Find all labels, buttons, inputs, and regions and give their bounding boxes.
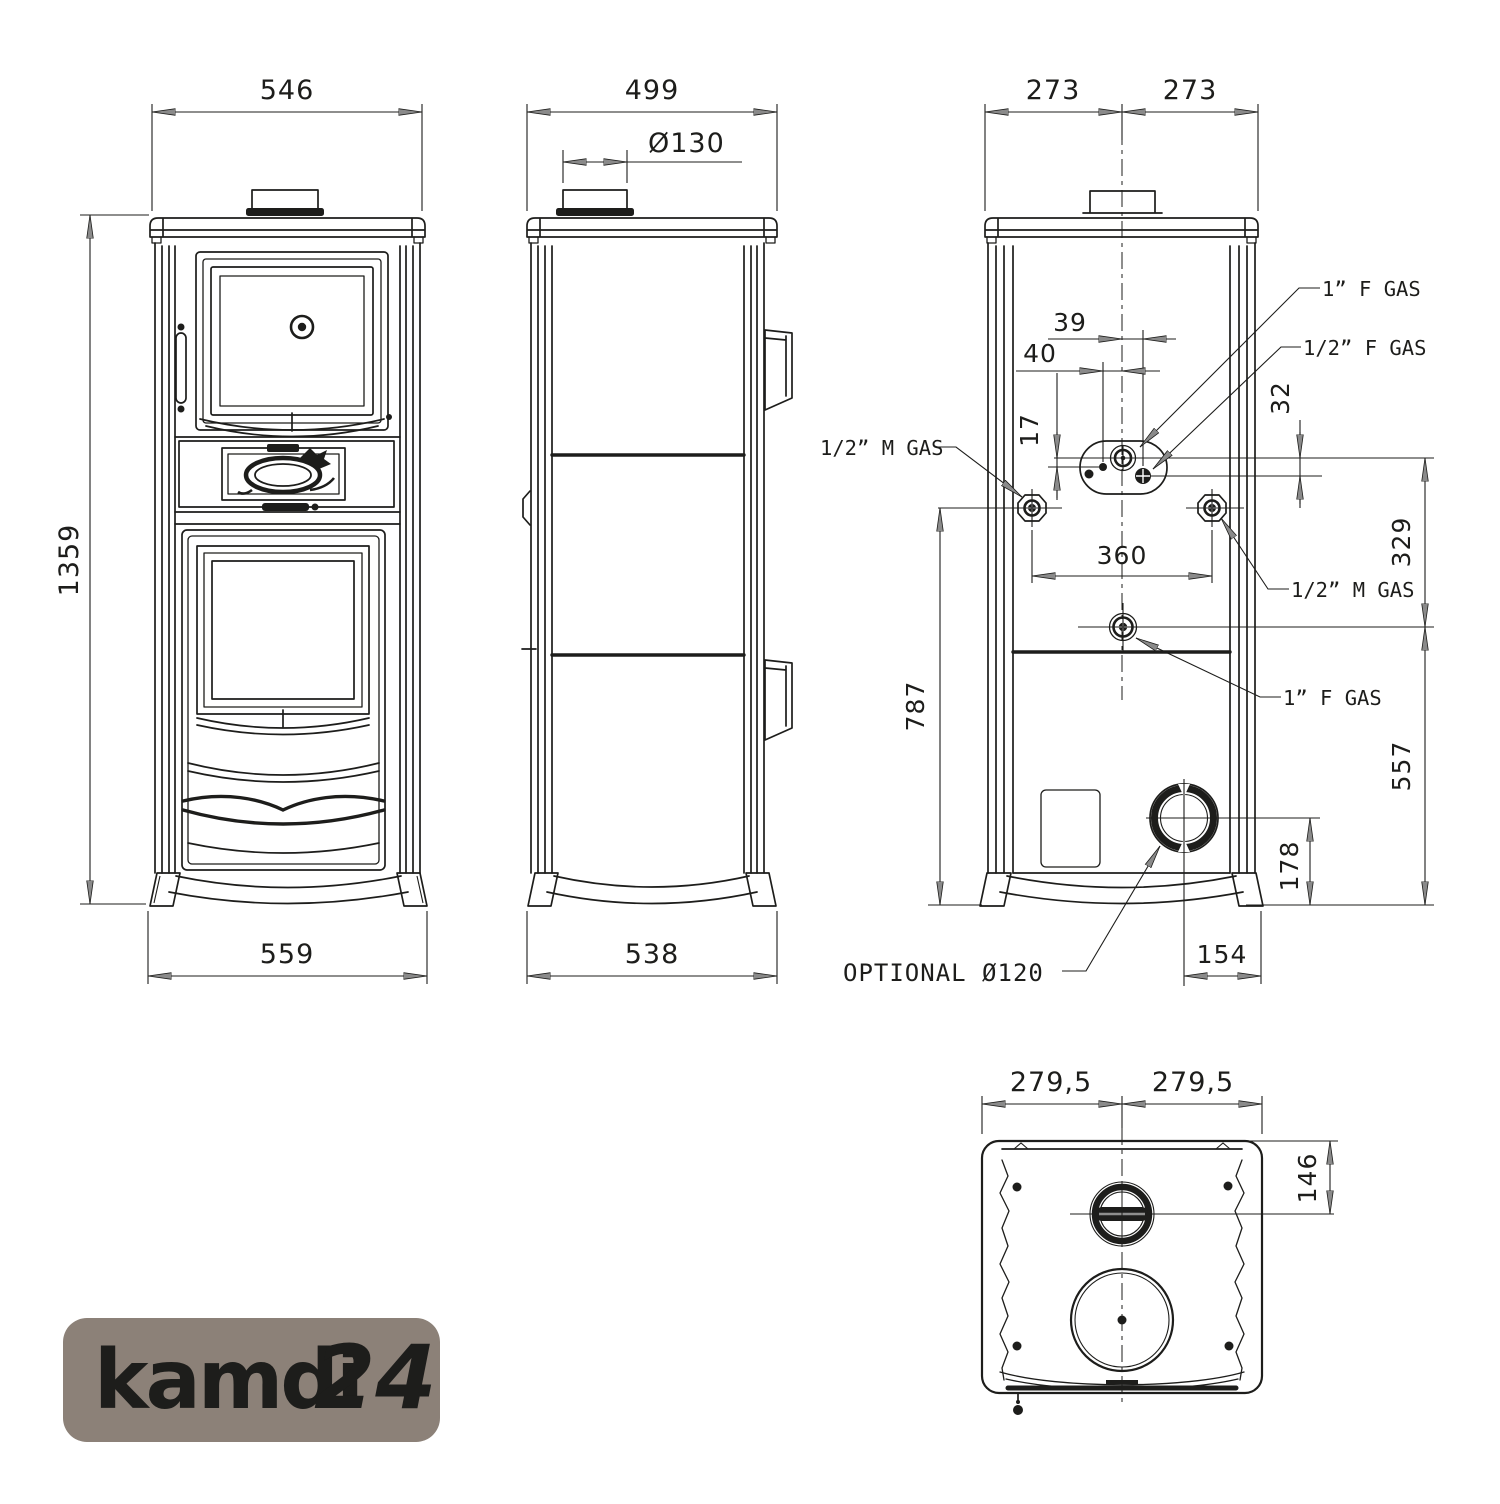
ash-drawer-handle: [262, 503, 309, 511]
ext-lines-130: [563, 150, 627, 183]
leader-optional-flue: [1062, 846, 1160, 971]
dim-273-right: 273: [1163, 75, 1218, 106]
gas-fitting-12m-left: [938, 489, 1062, 527]
dim-39: 39: [1053, 308, 1087, 337]
lower-firebox-door: [182, 530, 385, 870]
leader-1f-bottom: [1136, 638, 1281, 697]
side-top-plate: [527, 218, 777, 243]
ext-lines-546: [152, 104, 422, 211]
dim-546: 546: [260, 75, 315, 106]
dim-146: 146: [1293, 1153, 1322, 1204]
dim-329: 329: [1387, 517, 1416, 568]
label-gas-1f-bottom: 1” F GAS: [1283, 686, 1382, 710]
label-optional-flue: OPTIONAL Ø120: [843, 959, 1044, 987]
plan-wave-right: [1235, 1160, 1244, 1380]
upper-oven-door: [176, 252, 392, 437]
side-section-lines: [552, 455, 744, 655]
flame-emblem: [238, 448, 334, 494]
label-gas-12m-left: 1/2” M GAS: [820, 436, 943, 460]
dim-559: 559: [260, 939, 315, 970]
side-hinge-bump: [522, 491, 536, 649]
side-legs: [528, 873, 776, 906]
dim-178: 178: [1275, 841, 1304, 892]
dim-787: 787: [901, 681, 930, 732]
front-top-plate: [150, 218, 425, 243]
front-flue-collar: [246, 190, 324, 216]
side-flue-collar: [556, 190, 634, 216]
dim-273-left: 273: [1026, 75, 1081, 106]
side-body-lines: [531, 243, 764, 873]
firebox-window: [212, 561, 354, 699]
dim-2795-right: 279,5: [1152, 1067, 1234, 1098]
bottom-view: 279,5 279,5: [982, 1067, 1338, 1415]
label-gas-1f-top: 1” F GAS: [1322, 277, 1421, 301]
label-gas-12m-right: 1/2” M GAS: [1291, 578, 1414, 602]
plan-wave-left: [1000, 1160, 1009, 1380]
gas-fitting-12m-right: [1186, 489, 1244, 527]
dim-32: 32: [1266, 381, 1295, 415]
dim-1359: 1359: [54, 524, 85, 597]
stove-dimension-drawing: 546 1359 559: [0, 0, 1500, 1500]
front-view: 546 1359 559: [54, 75, 427, 984]
leader-12m-left: [936, 447, 1022, 497]
front-side-columns: [155, 243, 420, 873]
logo: kamdi 24: [63, 1318, 440, 1442]
rating-plate: [1041, 790, 1100, 867]
rear-view: 273 273: [820, 75, 1434, 987]
pilot-hole-left: [1099, 463, 1107, 471]
technical-drawing-page: 546 1359 559: [0, 0, 1500, 1500]
rear-legs: [980, 873, 1263, 906]
door-hinge: [176, 333, 186, 403]
side-door-handles: [765, 330, 792, 740]
dim-154: 154: [1197, 940, 1248, 969]
dim-499: 499: [625, 75, 680, 106]
logo-suffix-text: 24: [314, 1326, 436, 1429]
dim-538: 538: [625, 939, 680, 970]
label-gas-12f: 1/2” F GAS: [1303, 336, 1426, 360]
dim-2795-left: 279,5: [1010, 1067, 1092, 1098]
dim-40: 40: [1023, 339, 1057, 368]
gas-fitting-12f: [1135, 468, 1151, 484]
dim-flue-diameter: Ø130: [648, 128, 725, 159]
middle-band: [175, 437, 400, 524]
dim-17: 17: [1015, 413, 1044, 447]
pilot-hole-outer: [1085, 470, 1094, 479]
dim-557: 557: [1387, 741, 1416, 792]
dim-360: 360: [1097, 541, 1148, 570]
side-view: 499 Ø130 538: [522, 75, 792, 984]
gas-fitting-1f-bottom: [1078, 603, 1434, 652]
front-legs: [150, 873, 427, 906]
